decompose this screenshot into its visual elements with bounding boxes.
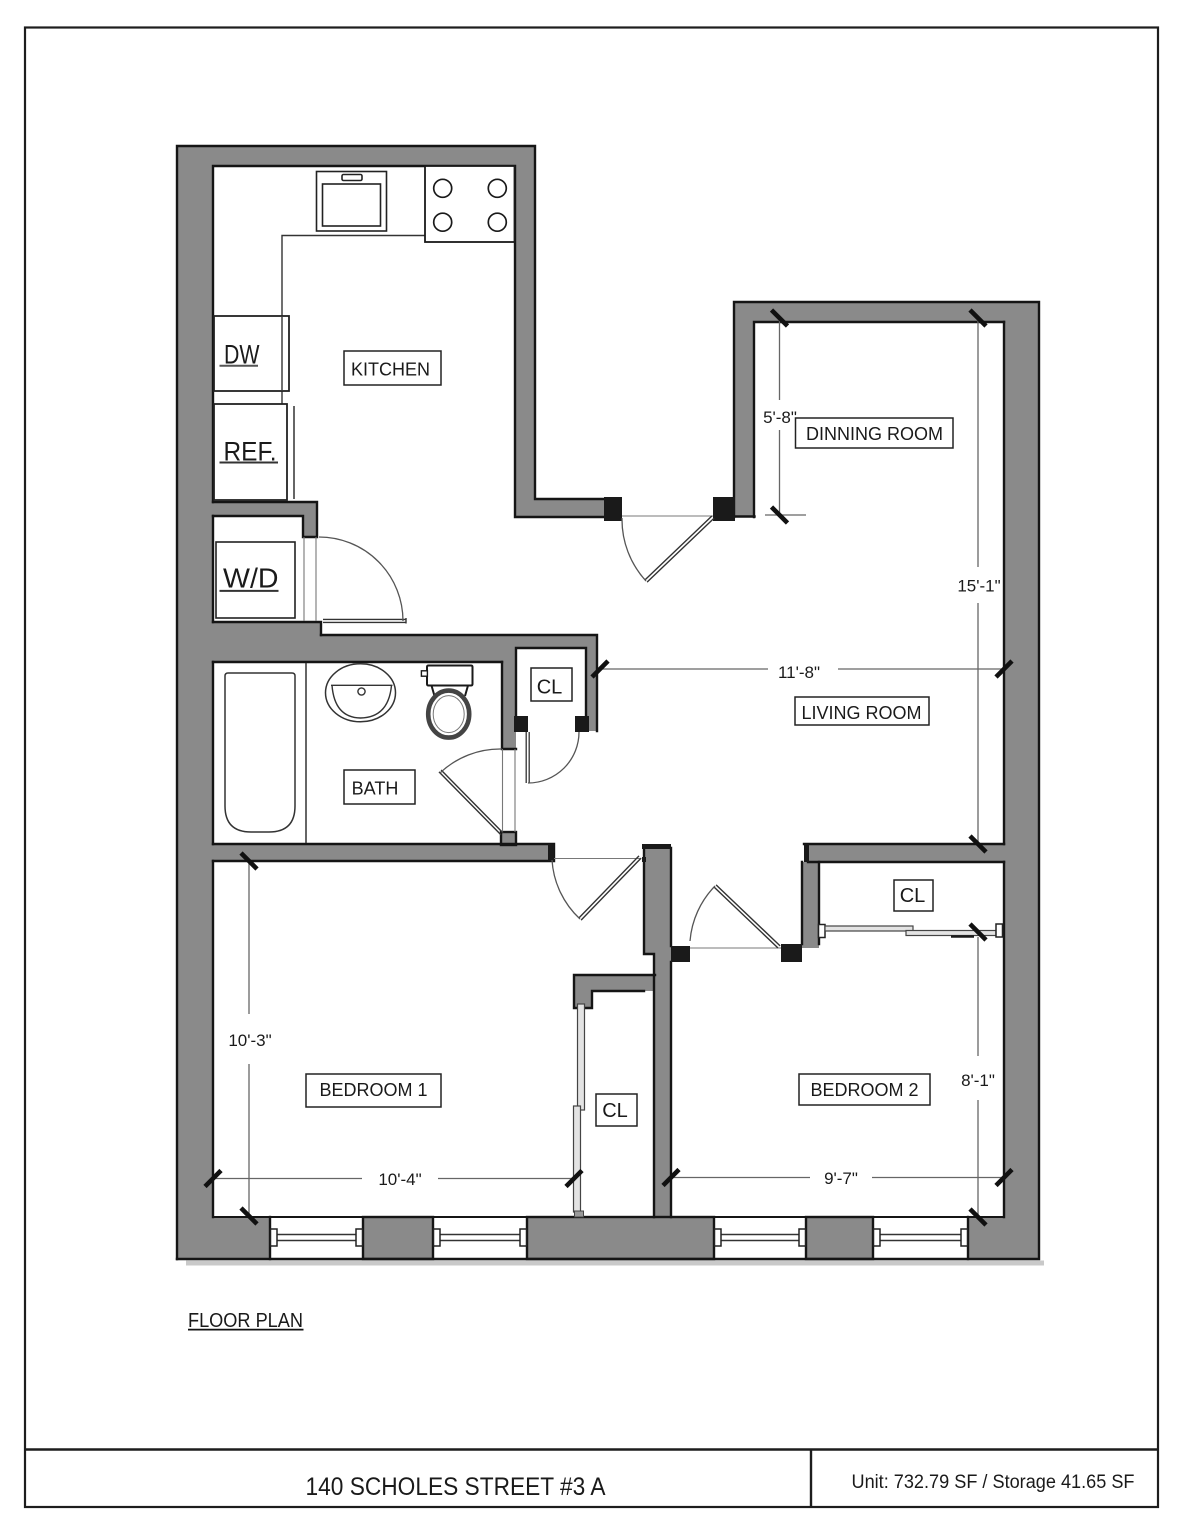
svg-text:CL: CL [900,885,926,907]
svg-text:140 SCHOLES STREET #3 A: 140 SCHOLES STREET #3 A [306,1473,606,1501]
svg-text:9'-7": 9'-7" [824,1169,858,1188]
svg-text:5'-8": 5'-8" [763,408,797,427]
svg-text:CL: CL [537,677,563,699]
svg-text:Unit: 732.79 SF / Storage 41.6: Unit: 732.79 SF / Storage 41.65 SF [852,1472,1135,1493]
svg-text:BEDROOM 2: BEDROOM 2 [810,1080,918,1100]
svg-text:BEDROOM 1: BEDROOM 1 [319,1080,427,1100]
svg-text:8'-1": 8'-1" [961,1071,995,1090]
svg-text:BATH: BATH [352,779,399,799]
svg-text:W/D: W/D [223,562,279,593]
svg-text:LIVING ROOM: LIVING ROOM [801,703,921,723]
svg-text:11'-8": 11'-8" [778,663,820,682]
svg-text:FLOOR PLAN: FLOOR PLAN [188,1310,303,1332]
svg-text:15'-1": 15'-1" [957,577,1000,596]
svg-text:CL: CL [602,1100,628,1122]
svg-text:10'-4": 10'-4" [378,1170,421,1189]
svg-text:KITCHEN: KITCHEN [351,360,430,380]
svg-text:DINNING ROOM: DINNING ROOM [806,424,943,444]
svg-text:10'-3": 10'-3" [228,1031,271,1050]
